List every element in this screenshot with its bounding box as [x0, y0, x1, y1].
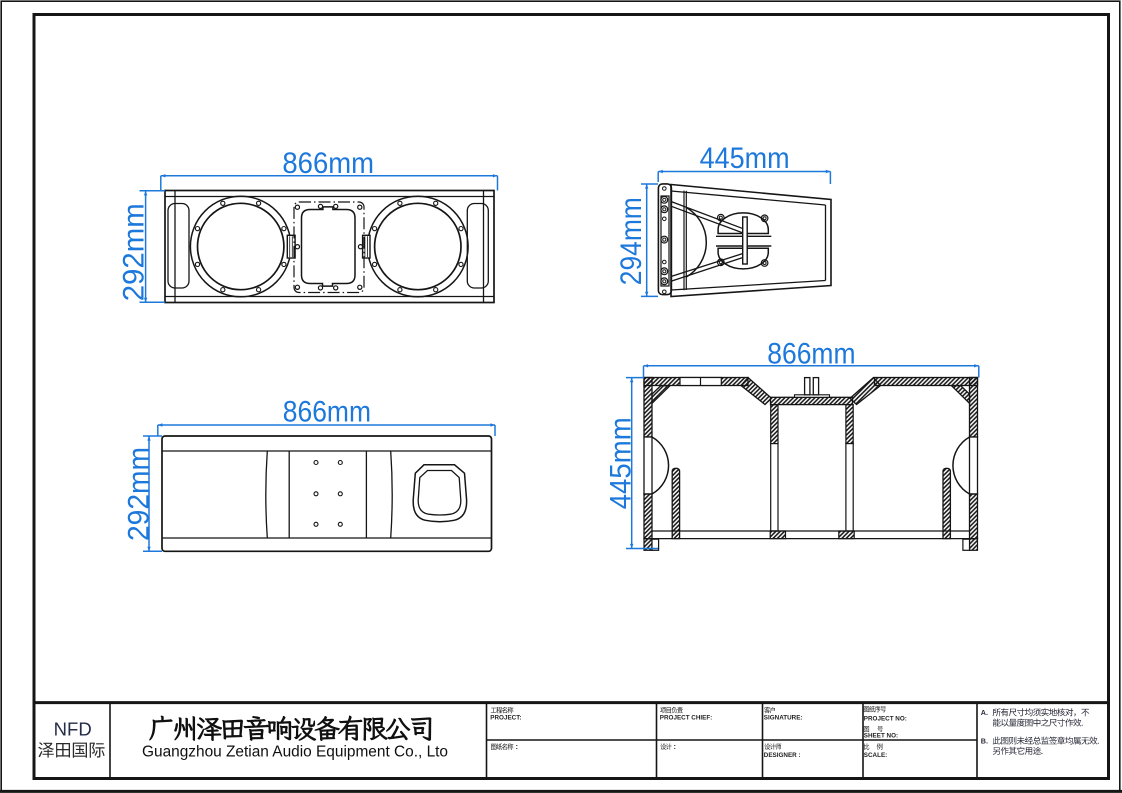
svg-text:PROJECT CHIEF:: PROJECT CHIEF:	[660, 715, 712, 722]
svg-text::: :	[516, 742, 519, 751]
svg-text:294mm: 294mm	[615, 197, 648, 285]
svg-text:NFD: NFD	[54, 719, 92, 740]
svg-text:Guangzhou Zetian Audio Equipme: Guangzhou Zetian Audio Equipment Co., Lt…	[142, 743, 448, 760]
svg-text:DESIGNER :: DESIGNER :	[764, 752, 801, 759]
svg-text:445mm: 445mm	[700, 142, 790, 175]
svg-text:292mm: 292mm	[118, 203, 151, 301]
svg-text:445mm: 445mm	[605, 417, 638, 509]
svg-text::: :	[674, 742, 677, 751]
svg-text:866mm: 866mm	[282, 147, 374, 180]
svg-text:866mm: 866mm	[283, 396, 371, 429]
svg-text:866mm: 866mm	[767, 337, 855, 370]
svg-text:B.: B.	[981, 736, 988, 745]
svg-text:PROJECT NO:: PROJECT NO:	[864, 716, 907, 723]
svg-text:SCALE:: SCALE:	[864, 752, 887, 759]
svg-text:292mm: 292mm	[122, 447, 155, 541]
svg-text:SIGNATURE:: SIGNATURE:	[764, 715, 803, 722]
svg-text:A.: A.	[981, 708, 988, 717]
svg-text:SHEET NO:: SHEET NO:	[864, 733, 898, 740]
svg-text:PROJECT:: PROJECT:	[490, 715, 521, 722]
